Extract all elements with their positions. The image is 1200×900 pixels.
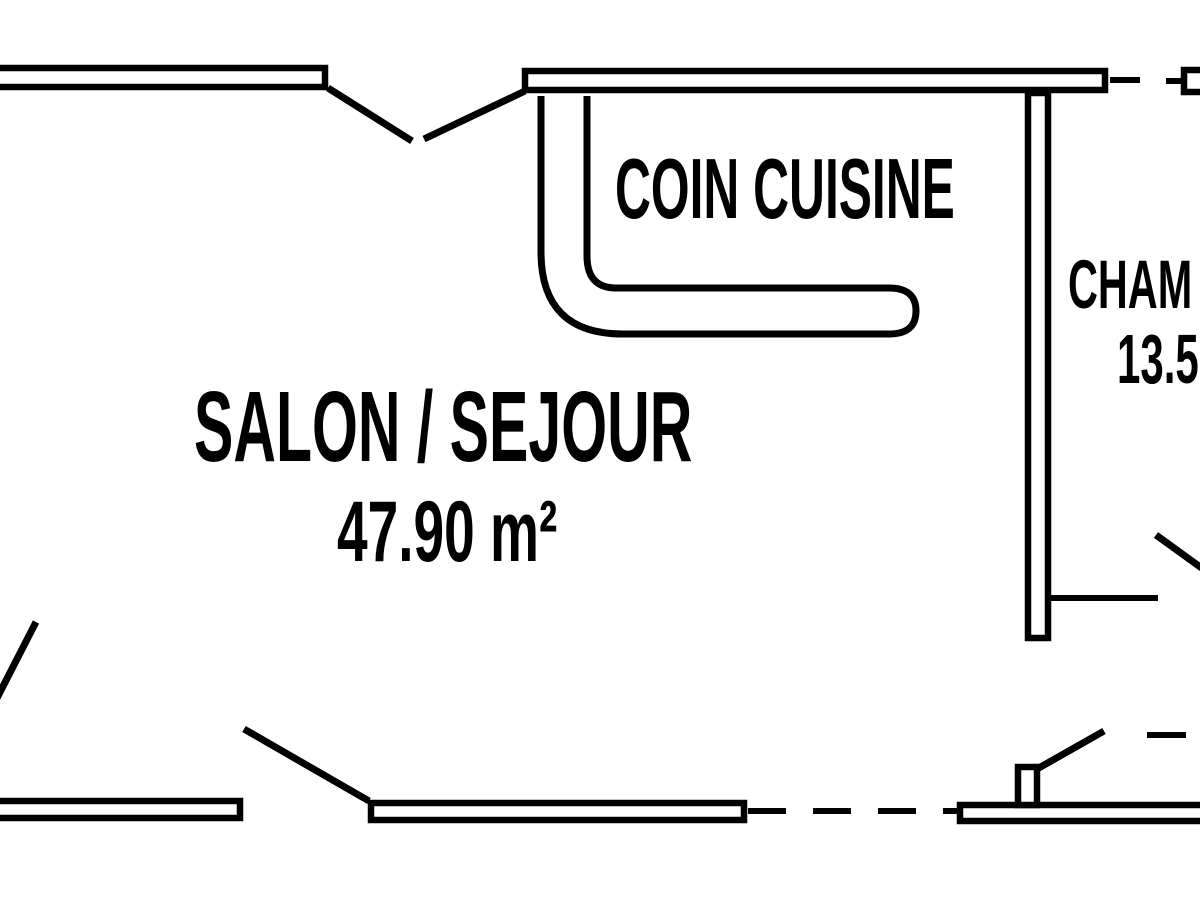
door-leaf-bottom: [244, 729, 369, 801]
floor-plan: COIN CUISINE SALON / SEJOUR 47.90 m² CHA…: [0, 0, 1200, 900]
salon-label: SALON / SEJOUR: [194, 377, 692, 477]
wall-divider-vertical: [1028, 93, 1048, 638]
door-leaf-top-left: [328, 88, 412, 141]
chambre-label: CHAM: [1068, 250, 1192, 319]
window-wall-top-left: [0, 68, 325, 87]
window-wall-bottom-middle: [371, 803, 744, 820]
salon-area-label: 47.90 m²: [337, 489, 557, 575]
wall-bottom-right: [960, 805, 1200, 821]
door-leaf-top-right: [424, 91, 525, 139]
chamber-door-leaf: [1156, 535, 1200, 569]
window-wall-bottom-left: [0, 801, 240, 818]
door-post-bottom-right: [1018, 767, 1037, 805]
chambre-area-label: 13.5: [1117, 324, 1199, 394]
cuisine-label: COIN CUISINE: [615, 147, 955, 232]
door-leaf-bottom-left-edge: [0, 622, 36, 700]
wall-stub-top-right-edge: [1184, 70, 1200, 92]
door-leaf-bottom-right: [1037, 731, 1104, 769]
wall-top-kitchen: [525, 71, 1105, 90]
